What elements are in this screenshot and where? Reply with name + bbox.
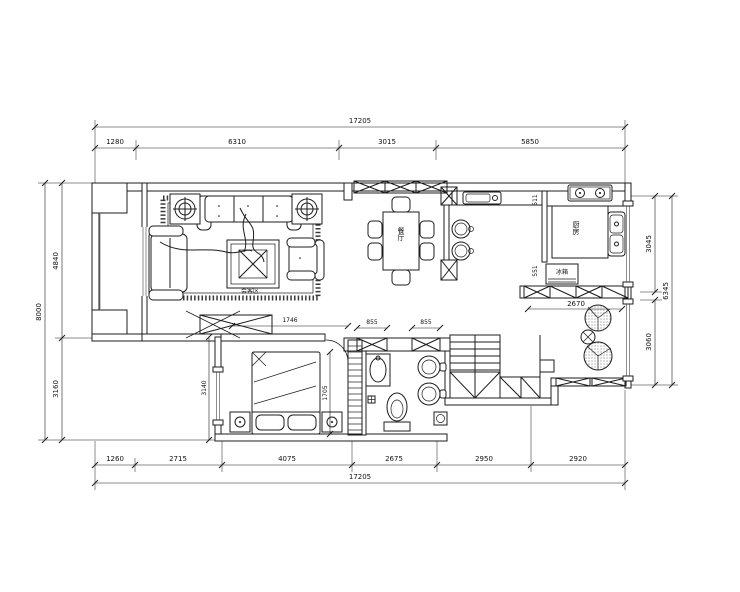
bedroom: 1746 1705 3140 <box>186 311 362 443</box>
floor-plan-page: 17205 1280 6310 3015 5850 1260 2715 4075… <box>0 0 740 592</box>
dim-right-seg1: 3045 <box>645 235 653 253</box>
bed <box>252 352 320 434</box>
counter-sink <box>463 192 501 204</box>
window-balcony-left <box>100 213 148 310</box>
dim-bottom-seg5: 2950 <box>475 455 493 463</box>
armchair-right <box>287 238 324 280</box>
sofa-three-seat <box>197 196 301 230</box>
dim-bottom-seg2: 2715 <box>169 455 187 463</box>
laundry-basin <box>418 356 446 378</box>
dim-bath-door-right: 855 <box>420 319 432 326</box>
dimension-top: 17205 1280 6310 3015 5850 <box>92 117 628 183</box>
dim-bedroom-depth: 3140 <box>201 380 208 395</box>
kitchen-label: 厨房 <box>572 221 580 236</box>
dim-balcony-width: 2670 <box>567 300 585 308</box>
dim-bed-length: 1705 <box>322 385 329 400</box>
floor-plan-drawing: 17205 1280 6310 3015 5850 1260 2715 4075… <box>0 0 740 592</box>
closet-strip <box>348 340 362 435</box>
nightstand-right <box>322 412 342 432</box>
plant-pot <box>585 305 611 331</box>
living-room: 会客区 <box>149 194 324 300</box>
gas-stove <box>568 185 612 201</box>
dim-bottom-seg3: 4075 <box>278 455 296 463</box>
dim-right-seg2: 3060 <box>645 333 653 351</box>
stool-round <box>581 330 595 344</box>
dining-room: 餐厅 <box>368 197 434 285</box>
dim-bottom-overall: 17205 <box>349 473 371 481</box>
plant-pot <box>584 342 612 370</box>
dining-chair <box>420 221 434 238</box>
wall-stub-living-dining <box>344 183 352 200</box>
dimension-right: 3045 3060 6345 <box>631 193 678 388</box>
living-room-label: 会客区 <box>241 287 259 295</box>
side-table-left <box>170 194 200 224</box>
toilet <box>384 393 410 431</box>
dimension-balcony-width: 2670 <box>525 300 625 312</box>
dim-top-seg4: 5850 <box>521 138 539 146</box>
dim-bottom-seg1: 1260 <box>106 455 124 463</box>
bath-lintel-right <box>412 338 440 351</box>
bar-counter-zone <box>441 187 542 280</box>
dim-kitchen-lower: 551 <box>532 265 539 277</box>
dim-bed-width: 1746 <box>282 317 297 324</box>
dining-chair <box>392 197 410 212</box>
double-sink <box>608 212 625 256</box>
nightstand-left <box>230 412 250 432</box>
dining-chair <box>368 243 382 260</box>
pillow <box>256 415 284 430</box>
dim-kitchen-upper: 511 <box>532 194 539 206</box>
fridge-label: 冰箱 <box>556 268 568 276</box>
bar-stool <box>452 242 474 260</box>
dim-top-overall: 17205 <box>349 117 371 125</box>
dining-chair <box>392 270 410 285</box>
staircase <box>450 335 554 398</box>
bathroom <box>344 338 450 435</box>
side-table-right <box>292 194 322 224</box>
dim-top-seg1: 1280 <box>106 138 124 146</box>
fridge: 冰箱 <box>546 264 578 284</box>
water-heater <box>434 412 447 425</box>
dim-right-overall: 6345 <box>662 282 670 300</box>
kitchen-island-counter <box>552 206 608 258</box>
dim-left-seg2: 3160 <box>52 380 60 398</box>
dim-top-seg2: 6310 <box>228 138 246 146</box>
dimension-bath-doors: 855 855 <box>354 319 443 331</box>
floor-drain <box>368 396 375 403</box>
chaise-sofa-left <box>149 226 187 300</box>
dining-table <box>383 212 419 270</box>
dim-bottom-seg6: 2920 <box>569 455 587 463</box>
dim-bottom-seg4: 2675 <box>385 455 403 463</box>
balcony-garden <box>581 305 612 370</box>
pillow <box>288 415 316 430</box>
wash-basin <box>366 354 390 386</box>
dim-left-overall: 8000 <box>35 303 43 321</box>
dining-chair <box>368 221 382 238</box>
window-bedroom-left <box>213 367 223 425</box>
dim-bath-door-left: 855 <box>366 319 378 326</box>
wall-stub-bar-bottom <box>441 260 457 280</box>
window-balcony-bay <box>623 299 633 381</box>
dim-left-seg1: 4840 <box>52 252 60 270</box>
bar-stool <box>452 220 474 238</box>
dining-chair <box>420 243 434 260</box>
laundry-basin <box>418 383 446 405</box>
dining-room-label: 餐厅 <box>397 226 405 241</box>
dim-top-seg3: 3015 <box>378 138 396 146</box>
